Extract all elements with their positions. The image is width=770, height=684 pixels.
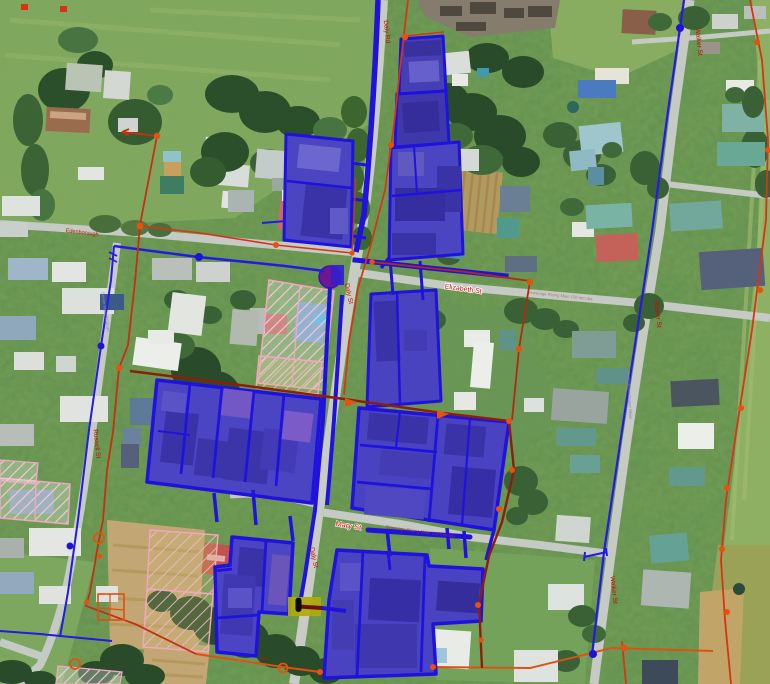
svg-text:254: 254 [260,656,268,661]
